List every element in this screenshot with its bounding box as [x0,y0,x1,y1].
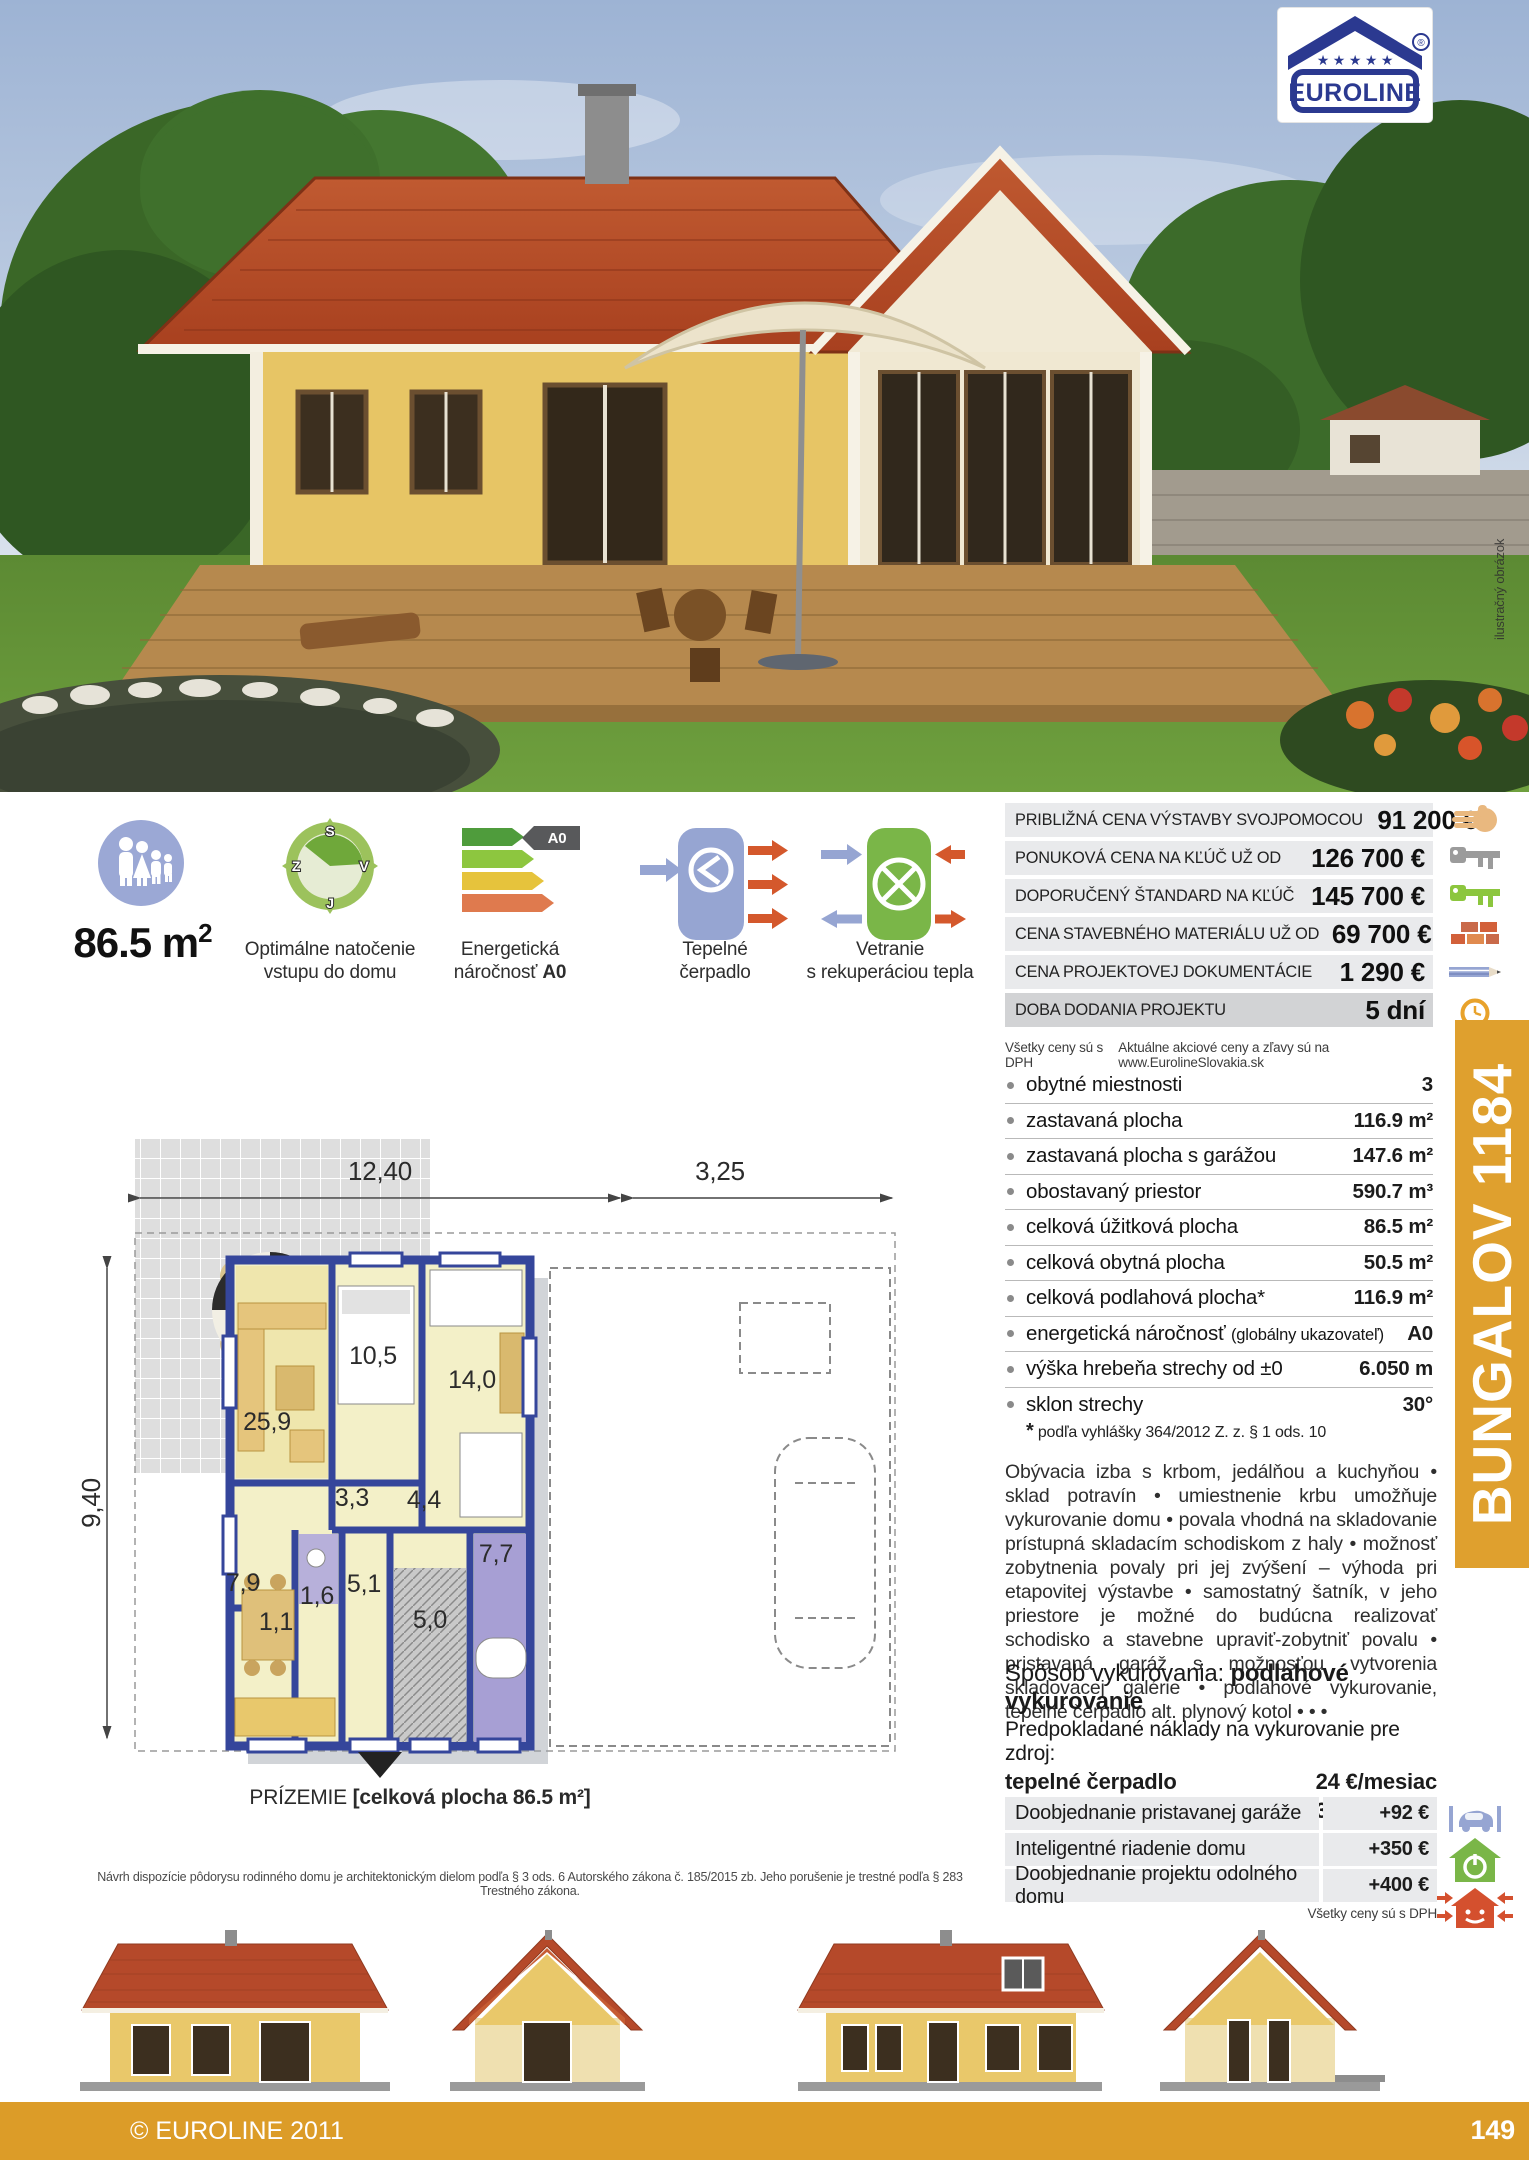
spec-value: 116.9 m² [1354,1109,1433,1133]
area-value: 86.5 m2 [40,918,245,967]
room-living: 25,9 [243,1408,291,1436]
heating-cost: 24 €/mesiac [1316,1769,1437,1795]
addon-label: Doobjednanie projektu odolného domu [1005,1869,1319,1902]
euroline-logo: ★ ★ ★ ★ ★ ® EUROLINE [1278,8,1432,122]
bricks-icon [1447,917,1503,951]
specs-list: obytné miestnosti3 zastavaná plocha116.9… [1005,1068,1433,1422]
family-area-icon [98,820,184,906]
heating-method-line: Spôsob vykurovania: podlahové vykurovani… [1005,1660,1437,1716]
room-bath: 7,7 [479,1540,513,1568]
room-kitchen: 7,9 [226,1569,260,1597]
addon-row: Inteligentné riadenie domu +350 € [1005,1833,1437,1866]
logo-registered: ® [1417,38,1425,49]
footnote-star: * [1026,1420,1034,1442]
addons-table: Doobjednanie pristavanej garáže +92 € In… [1005,1797,1437,1921]
price-value: 69 700 € [1332,919,1432,950]
spec-row: celková úžitková plocha86.5 m² [1005,1210,1433,1246]
energy-caption-grade: A0 [542,962,566,983]
spec-label: celková obytná plocha [1026,1251,1364,1275]
plan-caption: PRÍZEMIE [celková plocha 86.5 m²] [80,1786,760,1810]
price-label: PRIBLIŽNÁ CENA VÝSTAVBY SVOJPOMOCOU [1015,810,1363,830]
area-sup: 2 [198,918,211,948]
ventilation-icon [815,826,967,946]
spec-label-main: energetická náročnosť [1026,1322,1226,1345]
heat-pump-icon [640,826,790,946]
price-value: 126 700 € [1311,843,1425,874]
area-number: 86.5 m [73,919,198,966]
garage-car-icon [1447,1802,1503,1836]
spec-value: 147.6 m² [1353,1144,1433,1168]
spec-value: 30° [1403,1393,1433,1417]
spec-label: obytné miestnosti [1026,1073,1422,1097]
ventilation-caption: Vetranie s rekuperáciou tepla [800,938,980,984]
bullet-icon [1007,1082,1014,1089]
spec-label-note: (globálny ukazovateľ) [1231,1326,1384,1344]
house-photo: ★ ★ ★ ★ ★ ® EUROLINE ilustračný obrázok [0,0,1529,792]
addon-value: +92 € [1323,1797,1437,1830]
heatpump-caption: Tepelné čerpadlo [625,938,805,984]
footer-page-number: 149 [1471,2115,1515,2146]
addon-value: +400 € [1323,1869,1437,1902]
spec-value: 590.7 m³ [1353,1180,1433,1204]
ventilation-caption-line2: s rekuperáciou tepla [800,961,980,984]
addon-label: Inteligentné riadenie domu [1005,1833,1319,1866]
hand-icon [1447,803,1503,837]
chimney [585,92,629,184]
room-wc: 1,6 [300,1582,334,1610]
specs-footnote: * podľa vyhlášky 364/2012 Z. z. § 1 ods.… [1026,1420,1326,1443]
dim-depth: 9,40 [80,1478,106,1528]
spec-row: celková podlahová plocha*116.9 m² [1005,1281,1433,1317]
energy-caption-line1: Energetická [420,938,600,961]
footnote-text: podľa vyhlášky 364/2012 Z. z. § 1 ods. 1… [1038,1424,1326,1441]
floorplan: 12,40 3,25 9,40 [80,1138,920,1786]
spec-label: obostavaný priestor [1026,1180,1353,1204]
model-banner: BUNGALOV 1184 [1455,1020,1529,1568]
price-value: 5 dní [1365,995,1425,1026]
spec-label: celková úžitková plocha [1026,1215,1364,1239]
compass-caption-line1: Optimálne natočenie [230,938,430,961]
compass-n: S [325,823,334,839]
spec-row: obytné miestnosti3 [1005,1068,1433,1104]
plan-caption-title: PRÍZEMIE [249,1786,347,1809]
room-closet: 4,4 [407,1486,441,1514]
spec-row: obostavaný priestor590.7 m³ [1005,1175,1433,1211]
room-bath-small: 3,3 [335,1484,369,1512]
spec-label: zastavaná plocha [1026,1109,1354,1133]
bullet-icon [1007,1188,1014,1195]
room-tech: 5,0 [413,1606,447,1634]
price-row: DOPORUČENÝ ŠTANDARD NA KĽÚČ 145 700 € [1005,879,1433,913]
dim-width: 12,40 [348,1156,412,1186]
elevation-side-right [1150,1930,1390,2095]
footer-copyright: © EUROLINE 2011 [130,2117,344,2146]
price-note: Všetky ceny sú s DPH Aktuálne akciové ce… [1005,1040,1433,1070]
energy-label-icon: A0 [462,826,582,922]
logo-stars: ★ ★ ★ ★ ★ [1317,52,1394,68]
spec-value: 50.5 m² [1364,1251,1433,1275]
price-label: CENA PROJEKTOVEJ DOKUMENTÁCIE [1015,962,1312,982]
stone-fence [1150,470,1529,565]
heating-method-label: Spôsob vykurovania: [1005,1660,1224,1687]
price-row: PONUKOVÁ CENA NA KĽÚČ UŽ OD 126 700 € [1005,841,1433,875]
energy-caption-line2: náročnosť [454,962,538,983]
entrance-arrow [358,1752,402,1778]
compass-s: J [326,895,334,911]
smart-home-icon [1447,1838,1503,1882]
spec-value: 3 [1422,1073,1433,1097]
compass-icon: S Z V J [282,818,378,914]
bullet-icon [1007,1259,1014,1266]
price-note-link: Aktuálne akciové ceny a zľavy sú na www.… [1118,1040,1433,1070]
price-note-vat: Všetky ceny sú s DPH [1005,1040,1118,1070]
spec-value: A0 [1407,1322,1433,1346]
model-name: BUNGALOV 1184 [1460,1063,1524,1525]
spec-row: sklon strechy30° [1005,1388,1433,1423]
heating-cost-row: tepelné čerpadlo 24 €/mesiac [1005,1769,1437,1795]
spec-row: celková obytná plocha50.5 m² [1005,1246,1433,1282]
bullet-icon [1007,1401,1014,1408]
plan-caption-detail: [celková plocha 86.5 m²] [353,1786,591,1809]
spec-label: zastavaná plocha s garážou [1026,1144,1353,1168]
heating-source: tepelné čerpadlo [1005,1769,1177,1795]
elevation-rear [790,1930,1110,2095]
price-row: PRIBLIŽNÁ CENA VÝSTAVBY SVOJPOMOCOU 91 2… [1005,803,1433,837]
addon-value: +350 € [1323,1833,1437,1866]
spec-row: zastavaná plocha s garážou147.6 m² [1005,1139,1433,1175]
bullet-icon [1007,1366,1014,1373]
addon-label: Doobjednanie pristavanej garáže [1005,1797,1319,1830]
room-hall: 5,1 [347,1570,381,1598]
compass-caption: Optimálne natočenie vstupu do domu [230,938,430,984]
bullet-icon [1007,1295,1014,1302]
spec-label: energetická náročnosť (globálny ukazovat… [1026,1322,1407,1346]
bullet-icon [1007,1117,1014,1124]
garage-outline [550,1268,890,1746]
spec-label: výška hrebeňa strechy od ±0 [1026,1357,1359,1381]
bullet-icon [1007,1330,1014,1337]
spec-value: 86.5 m² [1364,1215,1433,1239]
key-green-icon [1447,879,1503,913]
spec-row: energetická náročnosť (globálny ukazovat… [1005,1317,1433,1353]
spec-label: celková podlahová plocha* [1026,1286,1354,1310]
legal-note: Návrh dispozície pôdorysu rodinného domu… [80,1870,980,1898]
spec-label: sklon strechy [1026,1393,1403,1417]
compass-caption-line2: vstupu do domu [230,961,430,984]
price-row: CENA PROJEKTOVEJ DOKUMENTÁCIE 1 290 € [1005,955,1433,989]
ventilation-caption-line1: Vetranie [800,938,980,961]
price-value: 1 290 € [1340,957,1425,988]
energy-caption: Energetická náročnosť A0 [420,938,600,984]
elevation-front [70,1930,400,2095]
addon-row: Doobjednanie pristavanej garáže +92 € [1005,1797,1437,1830]
dim-garage: 3,25 [695,1156,745,1186]
footer: © EUROLINE 2011 149 [0,2102,1529,2160]
addon-row: Doobjednanie projektu odolného domu +400… [1005,1869,1437,1902]
bullet-icon [1007,1224,1014,1231]
price-row: CENA STAVEBNÉHO MATERIÁLU UŽ OD 69 700 € [1005,917,1433,951]
price-value: 145 700 € [1311,881,1425,912]
heatpump-caption-line2: čerpadlo [625,961,805,984]
price-table: PRIBLIŽNÁ CENA VÝSTAVBY SVOJPOMOCOU 91 2… [1005,803,1433,1031]
compass-w: Z [292,858,301,874]
key-gray-icon [1447,841,1503,875]
room-bedroom2: 14,0 [448,1366,496,1394]
heating-costs-intro: Predpokladané náklady na vykurovanie pre… [1005,1718,1437,1766]
bullet-icon [1007,1153,1014,1160]
resilient-home-icon [1437,1888,1513,1928]
room-pantry: 1,1 [259,1608,293,1636]
price-label: CENA STAVEBNÉHO MATERIÁLU UŽ OD [1015,924,1319,944]
photo-caption-vertical: ilustračný obrázok [1492,539,1507,640]
elevation-side-left [435,1930,660,2095]
price-label: DOBA DODANIA PROJEKTU [1015,1000,1226,1020]
stairs [394,1568,466,1742]
spec-value: 116.9 m² [1354,1286,1433,1310]
price-row: DOBA DODANIA PROJEKTU 5 dní [1005,993,1433,1027]
spec-value: 6.050 m [1359,1357,1433,1381]
compass-e: V [359,858,369,874]
price-label: PONUKOVÁ CENA NA KĽÚČ UŽ OD [1015,848,1281,868]
room-bedroom1: 10,5 [349,1342,397,1370]
logo-text: EUROLINE [1288,79,1421,107]
spec-row: zastavaná plocha116.9 m² [1005,1104,1433,1140]
pencil-icon [1447,955,1503,989]
price-label: DOPORUČENÝ ŠTANDARD NA KĽÚČ [1015,886,1294,906]
heatpump-caption-line1: Tepelné [625,938,805,961]
spec-row: výška hrebeňa strechy od ±06.050 m [1005,1352,1433,1388]
euroline-logo-graphic: ★ ★ ★ ★ ★ ® EUROLINE [1280,10,1430,120]
energy-grade-text: A0 [548,830,567,847]
